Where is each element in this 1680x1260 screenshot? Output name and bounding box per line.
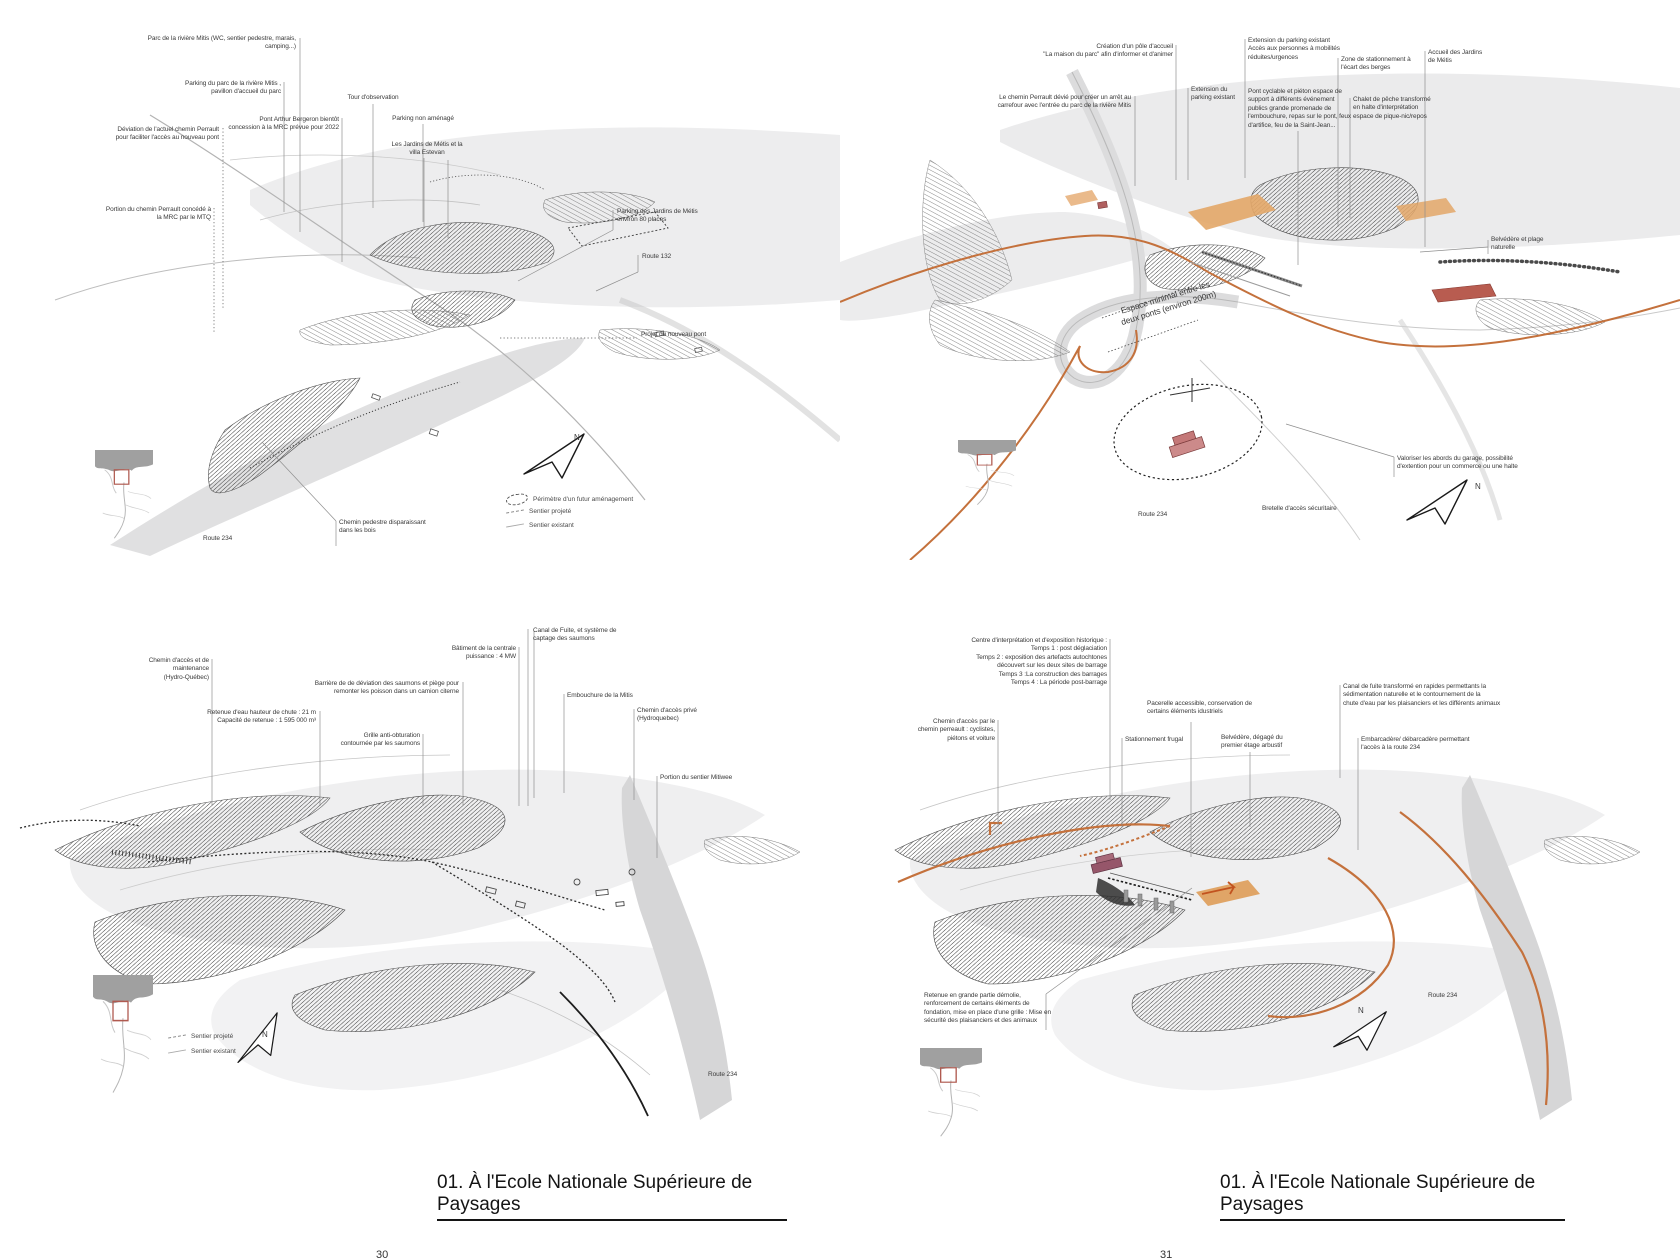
locator-inset: [93, 975, 153, 1093]
page-number-left: 30: [376, 1249, 388, 1260]
portfolio-spread: Parc de la rivière Mitis (WC, sentier pe…: [0, 0, 1680, 1260]
north-arrow-icon: [524, 434, 584, 478]
locator-inset: [958, 440, 1016, 505]
sketch-plan-existing-dam: [0, 560, 840, 1140]
chapter-caption-right: 01. À l'Ecole Nationale Supérieure de Pa…: [1220, 1172, 1565, 1221]
page-number-right: 31: [1160, 1249, 1172, 1260]
chapter-caption-left: 01. À l'Ecole Nationale Supérieure de Pa…: [437, 1172, 787, 1221]
sketch-plan-existing-rivermouth: [0, 0, 840, 560]
north-arrow-icon: [1407, 480, 1467, 524]
garage-building: [1167, 429, 1205, 458]
sketch-plan-project-dam: [840, 560, 1680, 1140]
sketch-plan-project-rivermouth: [840, 0, 1680, 560]
locator-inset: [920, 1048, 982, 1136]
